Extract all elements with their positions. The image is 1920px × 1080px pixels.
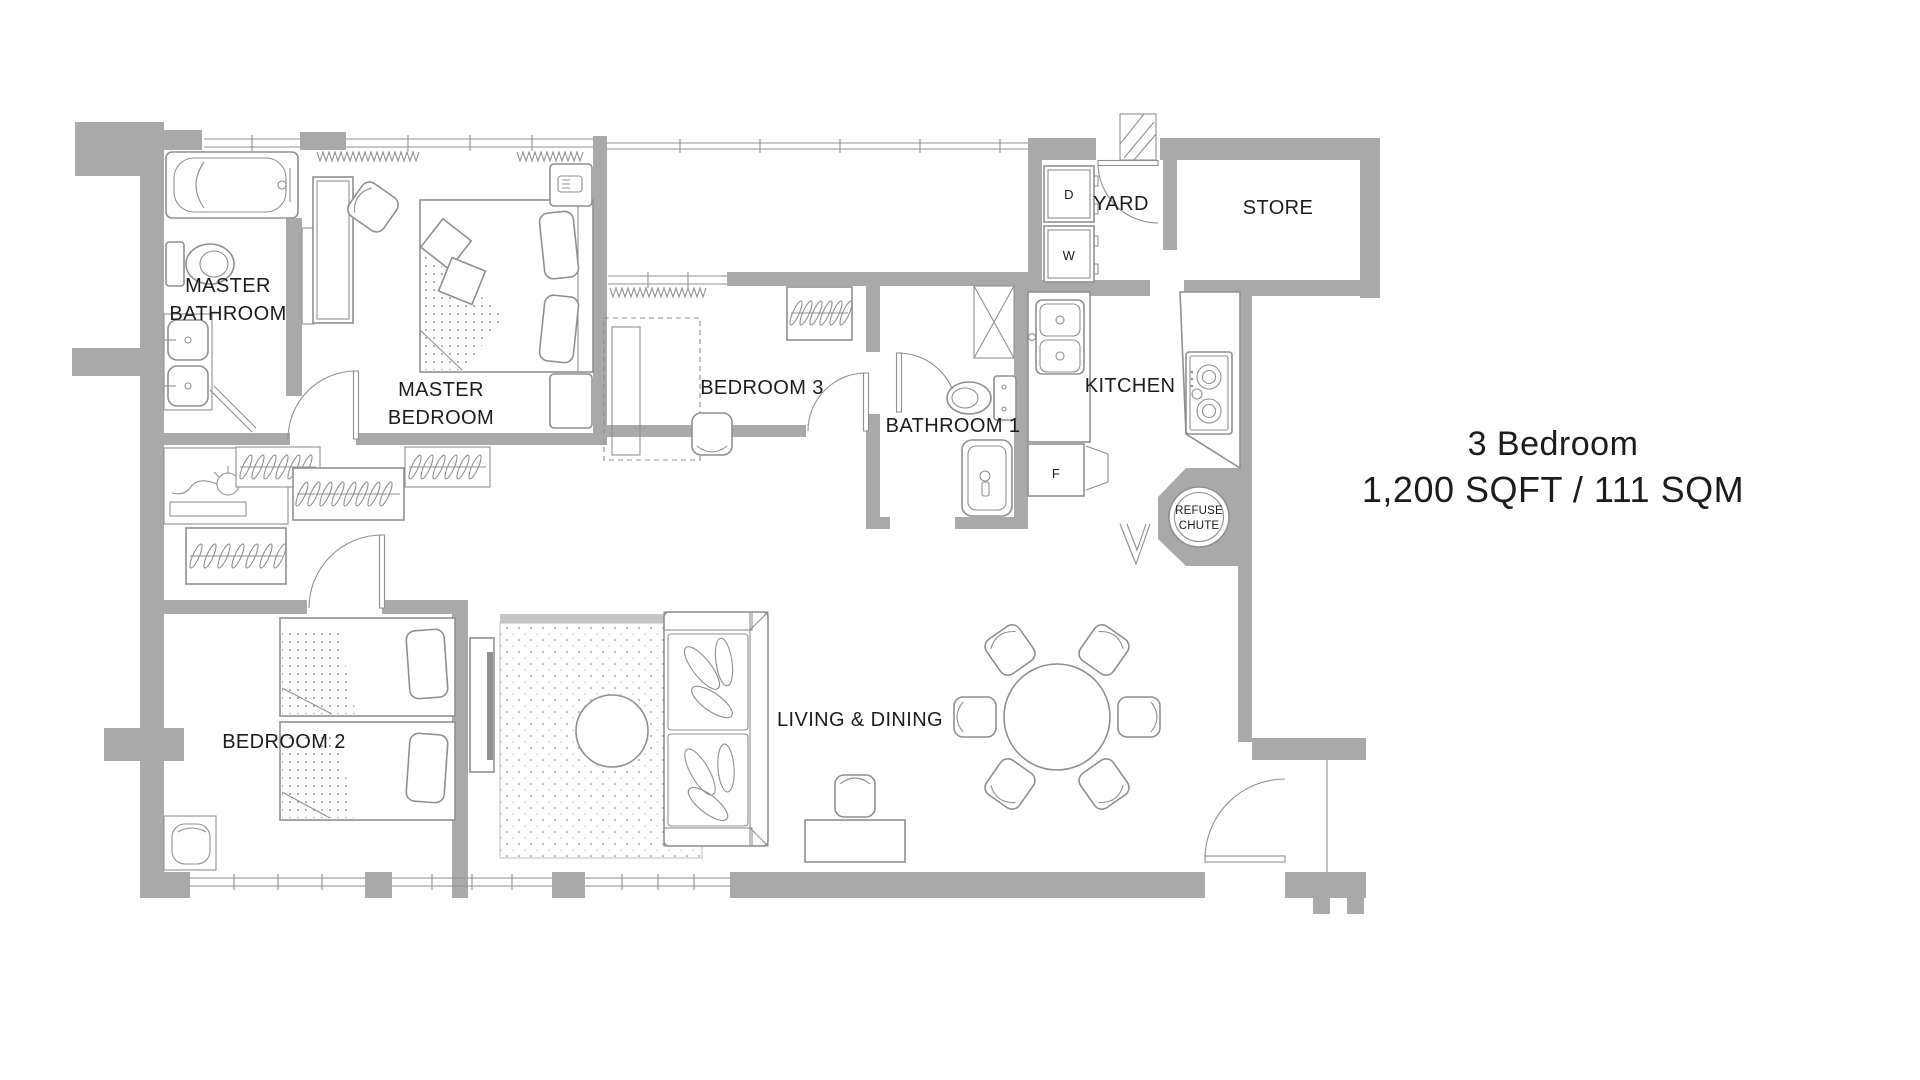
master-bed <box>420 200 593 372</box>
shaft <box>974 286 1014 358</box>
fridge: F <box>1028 444 1108 496</box>
living-dining: LIVING & DINING <box>470 612 1160 862</box>
bedroom2-door <box>309 535 385 608</box>
vanity-sinks <box>164 314 212 410</box>
shower-tray <box>962 440 1012 516</box>
coffee-table <box>576 695 648 767</box>
bedroom3-label: BEDROOM 3 <box>700 377 824 399</box>
bedroom3-wardrobe <box>787 287 854 340</box>
hall-closet-2 <box>405 447 490 487</box>
bedside-table-top <box>550 164 592 206</box>
bathroom1-toilet <box>947 376 1016 420</box>
refuse-chute-label-1: REFUSE <box>1175 505 1223 517</box>
plan-title-line2: 1,200 SQFT / 111 SQM <box>1362 469 1744 510</box>
entrance-door <box>1205 779 1285 862</box>
living-dining-label: LIVING & DINING <box>777 709 943 731</box>
store-label: STORE <box>1243 197 1314 219</box>
master-bathroom-door <box>210 386 256 432</box>
master-bathroom-label-2: BATHROOM <box>169 303 286 325</box>
bathroom1-label: BATHROOM 1 <box>886 415 1021 437</box>
bedroom3-bed <box>604 318 700 460</box>
yard: D W YARD <box>1044 166 1149 282</box>
master-bedroom-label-2: BEDROOM <box>388 407 494 429</box>
sofa <box>664 612 768 846</box>
bedroom2-armchair <box>164 816 216 870</box>
bathroom-1: BATHROOM 1 <box>886 286 1021 516</box>
hall-wardrobe <box>293 468 404 520</box>
desk <box>313 177 353 323</box>
bedroom-2: BEDROOM 2 <box>164 468 455 870</box>
floor-plan: MASTER BATHROOM <box>0 0 1920 1080</box>
plan-title-line1: 3 Bedroom <box>1468 425 1639 463</box>
floor-plan-page: MASTER BATHROOM <box>0 0 1920 1080</box>
plan-title: 3 Bedroom 1,200 SQFT / 111 SQM <box>1362 425 1744 510</box>
dining-set <box>954 621 1160 812</box>
study-desk <box>805 775 905 862</box>
refuse-chute-label-2: CHUTE <box>1179 520 1220 532</box>
washer: W <box>1044 226 1098 282</box>
washer-label: W <box>1063 248 1076 263</box>
master-bathroom-label-1: MASTER <box>185 275 271 297</box>
kitchen: F KITCHEN <box>1028 292 1240 496</box>
master-bedroom-label-1: MASTER <box>398 379 484 401</box>
bedroom3-chair <box>692 413 732 455</box>
bathtub <box>166 152 298 218</box>
bedside-table-bottom <box>550 374 592 428</box>
bedroom2-wardrobe <box>186 528 288 584</box>
fridge-label: F <box>1052 466 1060 481</box>
bed-1 <box>280 618 455 716</box>
dryer-label: D <box>1064 187 1074 202</box>
hob-counter <box>1180 292 1240 468</box>
duct <box>1120 114 1156 160</box>
tv-console <box>470 638 494 772</box>
bedroom2-label: BEDROOM 2 <box>222 731 346 753</box>
refuse-chute: REFUSE CHUTE <box>1120 468 1238 566</box>
dryer: D <box>1044 166 1098 222</box>
yard-label: YARD <box>1093 193 1149 215</box>
kitchen-label: KITCHEN <box>1085 375 1176 397</box>
kitchen-sink-counter <box>1028 292 1090 442</box>
